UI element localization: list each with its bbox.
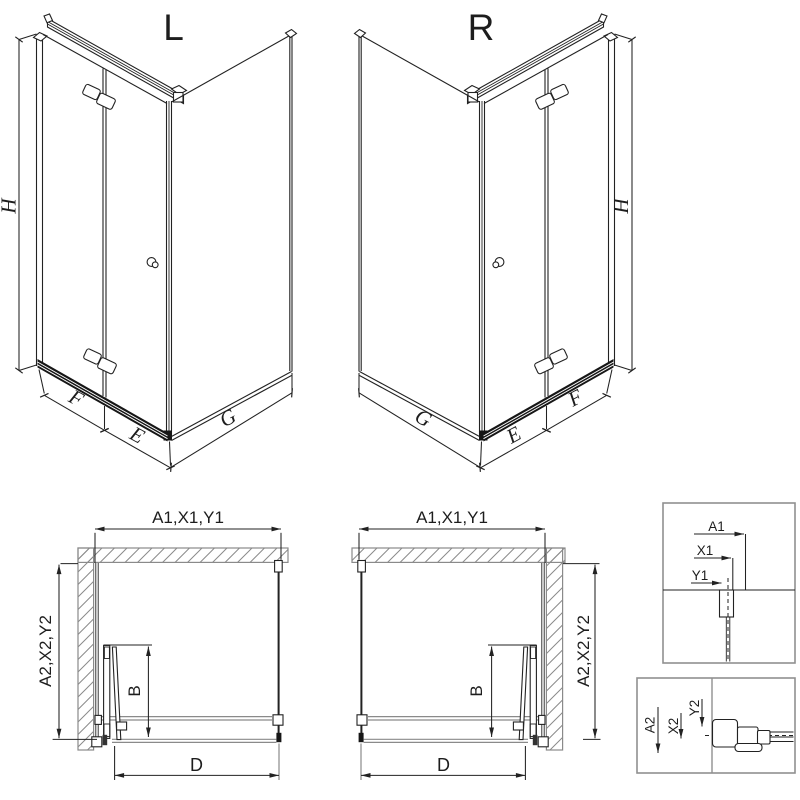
plan-left-structure [92,529,283,780]
plan-left-dim-d: D [190,755,203,775]
plan-right-back-wall [352,548,565,562]
iso-view-left: L H F E G [0,7,297,468]
detail-top-dim-x1: X1 [697,543,714,558]
plan-right-dim-a2: A2,X2,Y2 [574,615,593,687]
iso-left-dim-h: H [0,197,21,215]
plan-right-dim-a1: A1,X1,Y1 [416,508,488,527]
plan-left-back-wall [78,548,288,562]
iso-right-dim-h: H [609,197,633,215]
plan-right-side-wall [546,548,562,750]
detail-top-dim-a1: A1 [708,519,725,534]
plan-right-dim-b: B [467,685,486,696]
iso-left-title: L [163,7,184,48]
detail-bottom-dim-y2: Y2 [687,700,702,717]
plan-left-dim-a2: A2,X2,Y2 [36,615,55,687]
plan-left-dim-a1: A1,X1,Y1 [152,508,224,527]
iso-left-dim-f: F [64,384,88,412]
iso-left-structure [19,14,297,468]
iso-right-title: R [468,7,495,48]
detail-bottom-profile: A2 X2 Y2 [637,678,795,773]
shower-enclosure-diagram: L H F E G R H F E G A1,X1,Y1 A2,X2,Y2 B … [0,0,800,800]
plan-left-side-wall [78,548,94,750]
detail-top-dim-y1: Y1 [692,568,709,583]
detail-top-profile: A1 X1 Y1 [663,503,795,663]
plan-view-right: A1,X1,Y1 A2,X2,Y2 B D [352,508,601,780]
technical-drawing-page: L H F E G R H F E G A1,X1,Y1 A2,X2,Y2 B … [0,0,800,800]
plan-left-dim-b: B [125,685,144,696]
plan-view-left: A1,X1,Y1 A2,X2,Y2 B D [36,508,288,780]
plan-right-dim-d: D [437,755,450,775]
iso-view-right: R H F E G [355,7,634,468]
plan-right-structure [357,529,548,780]
iso-right-structure [355,14,633,468]
iso-right-dim-g: G [411,404,436,432]
iso-left-dim-g: G [215,404,240,432]
detail-bottom-dim-a2: A2 [643,717,658,734]
detail-bottom-dim-x2: X2 [666,718,681,735]
iso-right-dim-f: F [563,384,587,412]
